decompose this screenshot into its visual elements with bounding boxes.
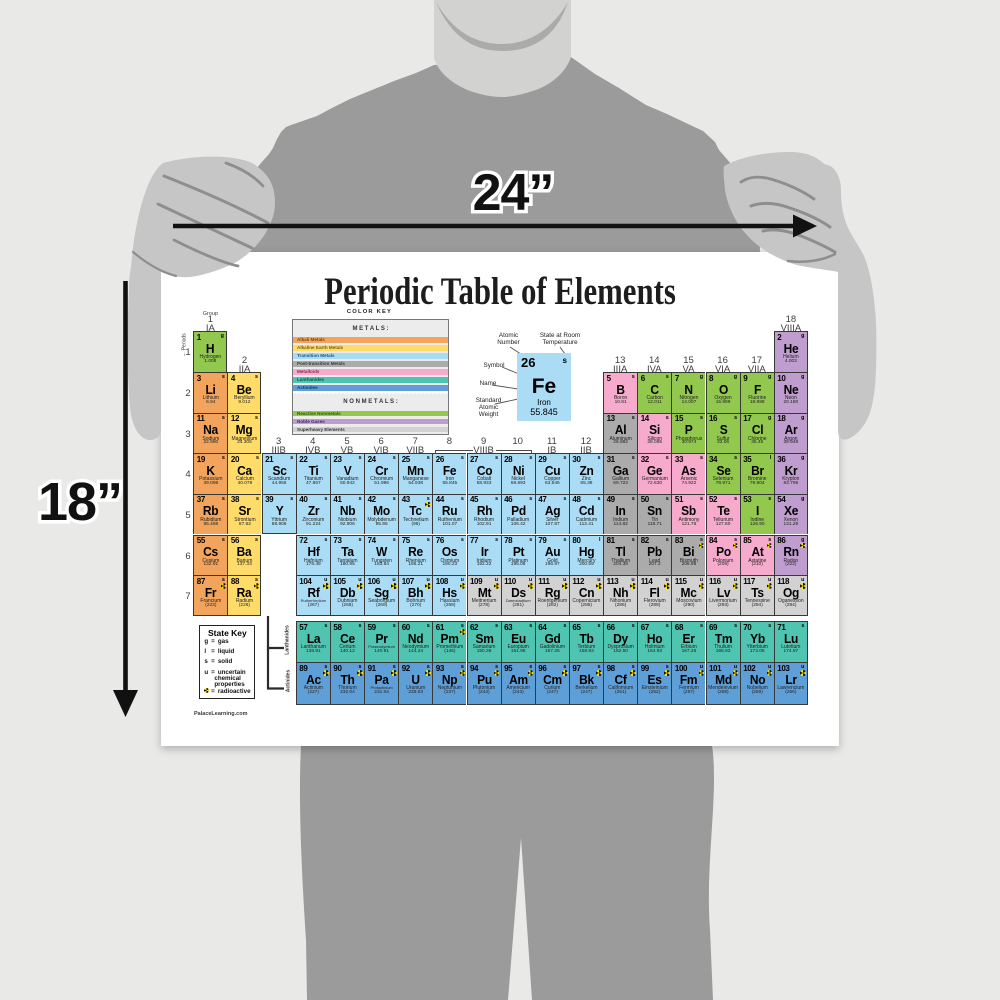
svg-text:24”: 24” — [473, 164, 554, 222]
svg-text:18”: 18” — [38, 472, 122, 532]
